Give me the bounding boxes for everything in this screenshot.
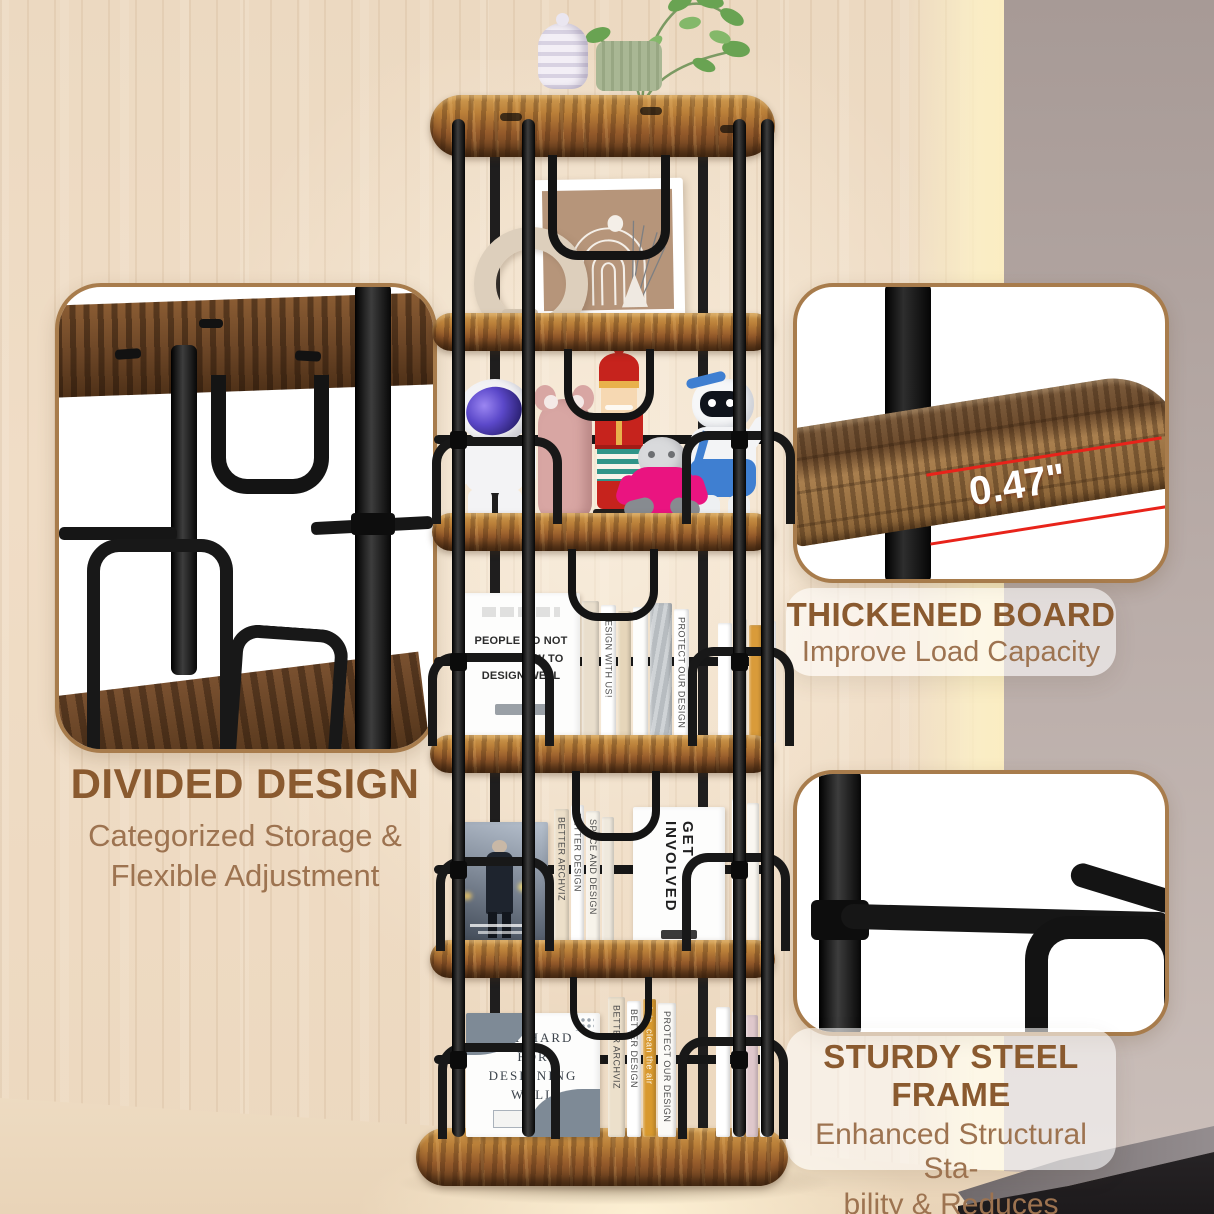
book-spine-title: PROTECT OUR DESIGN bbox=[677, 617, 687, 728]
ornament-topper bbox=[556, 13, 569, 26]
book-spine-title: BETTER ARCHVIZ bbox=[557, 817, 567, 901]
frame-diagonal-tube bbox=[1068, 860, 1169, 915]
inset-steel-frame bbox=[793, 770, 1169, 1036]
pole-connector bbox=[731, 431, 748, 449]
steel-pole bbox=[452, 119, 465, 1137]
wood-shelf-board bbox=[432, 313, 773, 351]
rotating-bookshelf-tower: PEOPLE DO NOT KNOW HOW TO DESIGN WELL GE… bbox=[430, 85, 790, 1205]
sturdy-frame-sub2: bility & Reduces Wobbling bbox=[786, 1188, 1116, 1214]
frame-curved-hook bbox=[1025, 916, 1169, 1036]
pole-connector bbox=[450, 1051, 467, 1069]
inset-divided-design bbox=[55, 283, 437, 753]
pole-connector bbox=[450, 431, 467, 449]
divided-design-callout: DIVIDED DESIGN Categorized Storage & Fle… bbox=[10, 760, 480, 894]
divided-design-sub2: Flexible Adjustment bbox=[10, 858, 480, 894]
product-scene: PEOPLE DO NOT KNOW HOW TO DESIGN WELL GE… bbox=[0, 0, 1214, 1214]
pole-connector bbox=[731, 1051, 748, 1069]
book-spine-title: PROTECT OUR DESIGN bbox=[662, 1011, 672, 1122]
board-slot bbox=[295, 350, 321, 361]
book-spine bbox=[650, 603, 672, 743]
inset-thick-board bbox=[793, 368, 1169, 547]
pole-connector bbox=[351, 513, 395, 535]
sturdy-frame-callout: STURDY STEEL FRAME Enhanced Structural S… bbox=[786, 1028, 1116, 1170]
inset-wire-divider-left bbox=[87, 539, 233, 752]
hanging-divider-hook bbox=[568, 549, 658, 621]
book-spine: PROTECT OUR DESIGN bbox=[674, 609, 689, 743]
sturdy-frame-sub1: Enhanced Structural Sta- bbox=[786, 1118, 1116, 1186]
book-spine: BETTER ARCHVIZ bbox=[554, 809, 569, 947]
spiral-ornament bbox=[538, 23, 588, 89]
board-slot bbox=[199, 319, 223, 328]
book-spine bbox=[582, 601, 599, 743]
steel-pole bbox=[522, 119, 535, 1137]
divided-design-sub1: Categorized Storage & bbox=[10, 818, 480, 854]
inset-thickened-board: 0.47" bbox=[793, 283, 1169, 583]
hanging-divider-hook bbox=[564, 349, 654, 421]
board-slot bbox=[115, 348, 142, 360]
board-slot bbox=[640, 107, 662, 115]
pole-connector bbox=[450, 653, 467, 671]
inset-wire-divider-mid bbox=[222, 623, 349, 753]
board-slot bbox=[500, 113, 522, 121]
steel-pole bbox=[761, 119, 774, 1137]
hanging-divider-hook bbox=[572, 771, 660, 841]
divided-design-title: DIVIDED DESIGN bbox=[10, 760, 480, 808]
book-spine bbox=[618, 611, 631, 743]
thickened-board-title: THICKENED BOARD bbox=[786, 596, 1116, 634]
hanging-divider-hook bbox=[570, 977, 652, 1040]
pole-connector bbox=[450, 861, 467, 879]
book-spine: PROTECT OUR DESIGN bbox=[658, 1003, 676, 1137]
inset-hanging-hook bbox=[211, 375, 329, 494]
pole-connector bbox=[731, 653, 748, 671]
mid-book-title-line1: PEOPLE DO NOT bbox=[462, 633, 580, 651]
thickened-board-callout: THICKENED BOARD Improve Load Capacity bbox=[786, 588, 1116, 676]
pole-connector bbox=[731, 861, 748, 879]
book-spine bbox=[633, 607, 648, 743]
sturdy-frame-title: STURDY STEEL FRAME bbox=[786, 1038, 1116, 1114]
book-spine-title: DESIGN WITH US! bbox=[604, 613, 614, 698]
green-vase bbox=[596, 41, 662, 91]
wire-divider bbox=[428, 653, 554, 746]
thickened-board-sub1: Improve Load Capacity bbox=[786, 636, 1116, 669]
book-spine: DESIGN WITH US! bbox=[601, 605, 616, 743]
hanging-divider-hook bbox=[548, 155, 670, 260]
steel-pole bbox=[733, 119, 746, 1137]
